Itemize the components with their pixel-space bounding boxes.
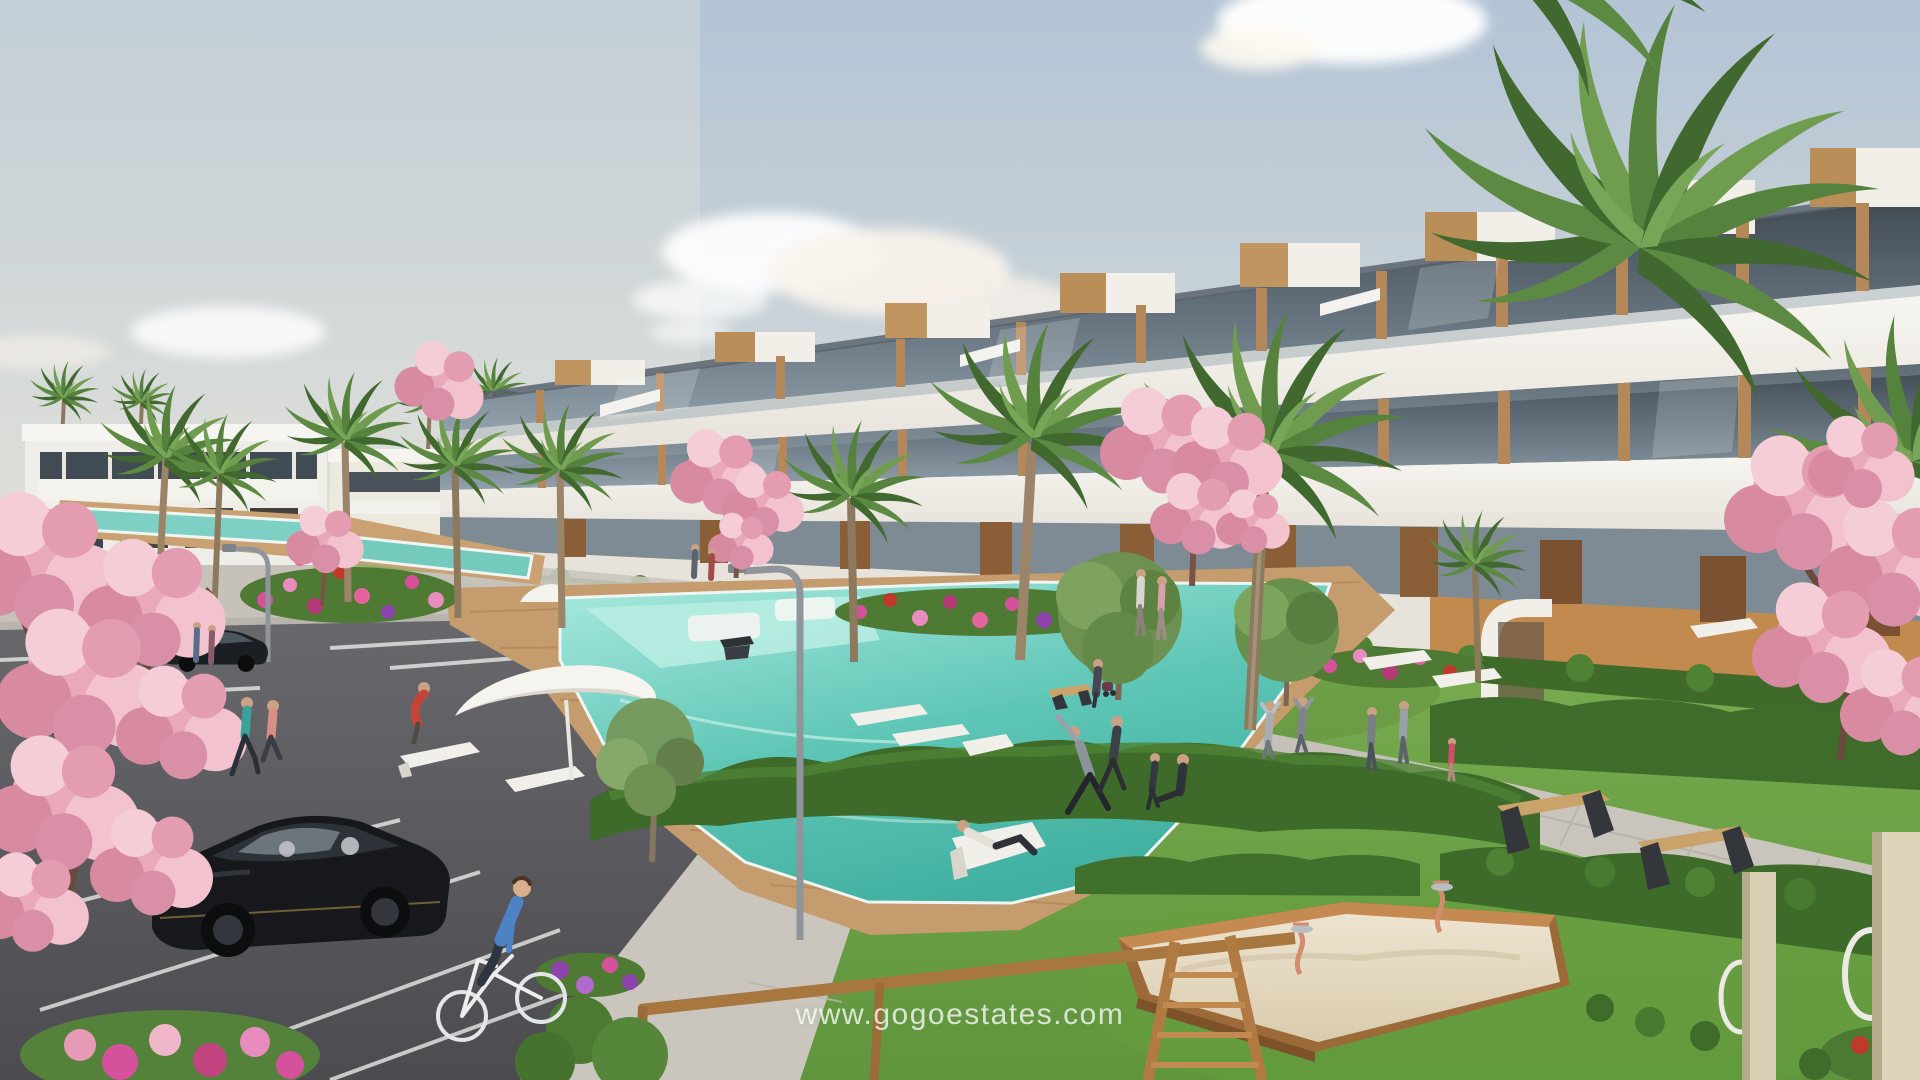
watermark: www.gogoestates.com: [796, 998, 1125, 1032]
sandbox-hedge: [1075, 853, 1420, 896]
architectural-render: www.gogoestates.com: [0, 0, 1920, 1080]
